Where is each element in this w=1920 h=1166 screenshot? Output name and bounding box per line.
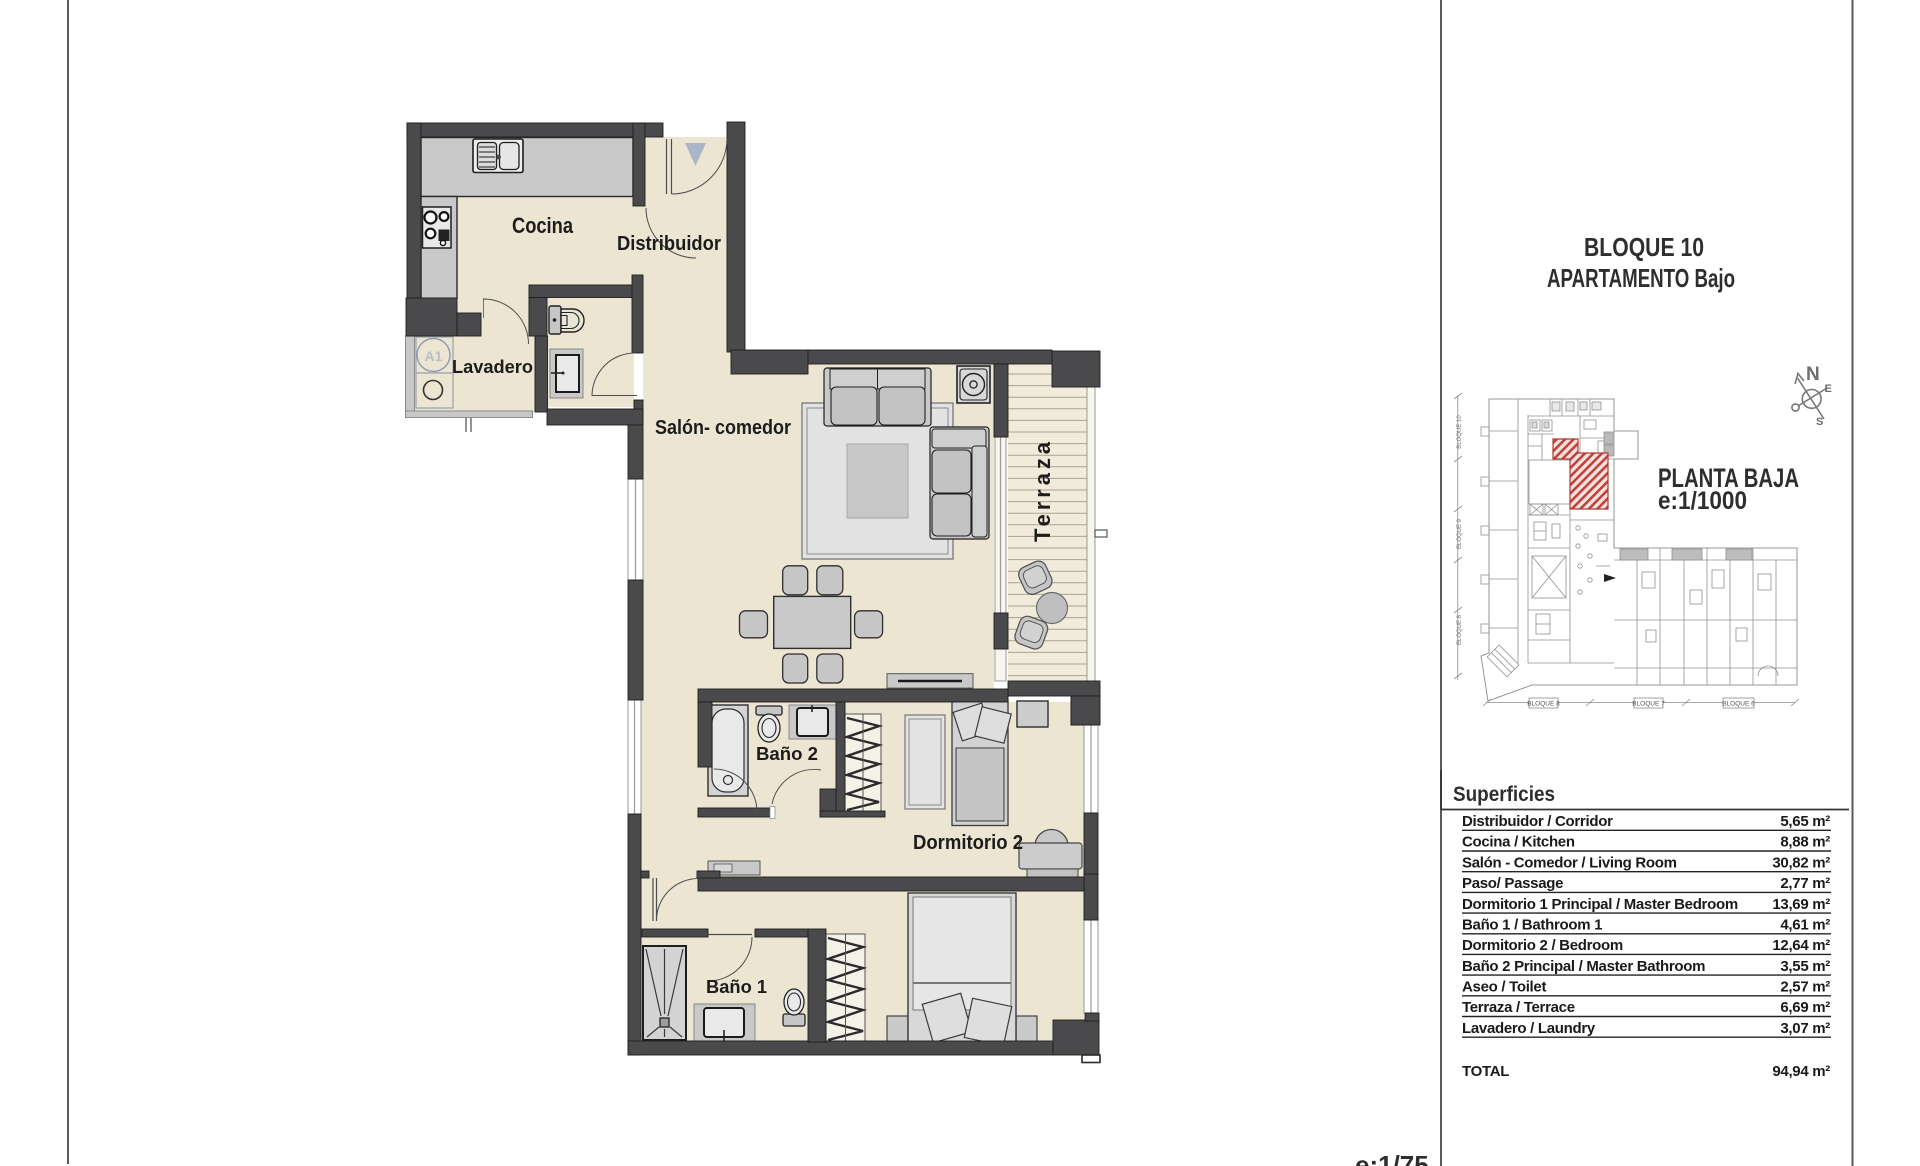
svg-text:Distribuidor / Corridor: Distribuidor / Corridor — [1462, 813, 1613, 830]
svg-text:BLOQUE 10: BLOQUE 10 — [1457, 415, 1463, 449]
svg-text:E: E — [1825, 383, 1832, 395]
svg-text:Baño 1 / Bathroom 1: Baño 1 / Bathroom 1 — [1462, 917, 1602, 934]
svg-text:Baño 2: Baño 2 — [756, 744, 818, 764]
svg-text:BLOQUE 6: BLOQUE 6 — [1722, 701, 1755, 708]
svg-text:BLOQUE 8: BLOQUE 8 — [1457, 614, 1463, 645]
svg-text:4,61 m²: 4,61 m² — [1780, 917, 1830, 934]
svg-text:e:1/75: e:1/75 — [1355, 1150, 1429, 1166]
svg-text:Superficies: Superficies — [1453, 783, 1555, 806]
svg-text:3,07 m²: 3,07 m² — [1780, 1020, 1830, 1037]
svg-text:2,77 m²: 2,77 m² — [1780, 875, 1830, 892]
svg-text:Distribuidor: Distribuidor — [617, 233, 721, 255]
svg-text:Lavadero: Lavadero — [452, 357, 533, 377]
svg-text:Dormitorio 1 Principal / Maste: Dormitorio 1 Principal / Master Bedroom — [1462, 896, 1738, 913]
svg-text:12,64 m²: 12,64 m² — [1772, 937, 1830, 954]
svg-text:BLOQUE 9: BLOQUE 9 — [1457, 518, 1463, 549]
svg-text:A1: A1 — [425, 348, 443, 364]
svg-text:Salón - Comedor / Living Room: Salón - Comedor / Living Room — [1462, 854, 1677, 871]
svg-text:Paso/ Passage: Paso/ Passage — [1462, 875, 1563, 892]
svg-text:BLOQUE 7: BLOQUE 7 — [1632, 701, 1665, 708]
svg-text:8,88 m²: 8,88 m² — [1780, 834, 1830, 851]
svg-text:Aseo / Toilet: Aseo / Toilet — [1462, 979, 1546, 996]
svg-text:TOTAL: TOTAL — [1462, 1063, 1509, 1080]
svg-text:Lavadero / Laundry: Lavadero / Laundry — [1462, 1020, 1596, 1037]
svg-text:e:1/1000: e:1/1000 — [1658, 487, 1747, 515]
svg-text:94,94 m²: 94,94 m² — [1772, 1063, 1830, 1080]
svg-text:Cocina: Cocina — [512, 213, 574, 238]
svg-text:Terraza / Terrace: Terraza / Terrace — [1462, 999, 1575, 1016]
svg-text:30,82 m²: 30,82 m² — [1772, 854, 1830, 871]
svg-text:Baño 2 Principal / Master Bath: Baño 2 Principal / Master Bathroom — [1462, 958, 1705, 975]
svg-text:3,55 m²: 3,55 m² — [1780, 958, 1830, 975]
svg-text:2,57 m²: 2,57 m² — [1780, 979, 1830, 996]
svg-text:BLOQUE 10: BLOQUE 10 — [1584, 232, 1704, 262]
svg-text:BLOQUE 8: BLOQUE 8 — [1527, 701, 1560, 708]
svg-text:Baño 1: Baño 1 — [706, 977, 767, 997]
svg-text:6,69 m²: 6,69 m² — [1780, 999, 1830, 1016]
svg-text:S: S — [1816, 416, 1823, 428]
svg-text:Dormitorio 2: Dormitorio 2 — [913, 832, 1023, 854]
svg-text:Dormitorio 2 / Bedroom: Dormitorio 2 / Bedroom — [1462, 937, 1623, 954]
svg-text:APARTAMENTO Bajo: APARTAMENTO Bajo — [1547, 263, 1735, 293]
svg-text:5,65 m²: 5,65 m² — [1780, 813, 1830, 830]
svg-text:N: N — [1806, 364, 1820, 385]
svg-text:13,69 m²: 13,69 m² — [1772, 896, 1830, 913]
svg-text:Salón- comedor: Salón- comedor — [655, 417, 791, 439]
svg-text:Cocina / Kitchen: Cocina / Kitchen — [1462, 834, 1575, 851]
